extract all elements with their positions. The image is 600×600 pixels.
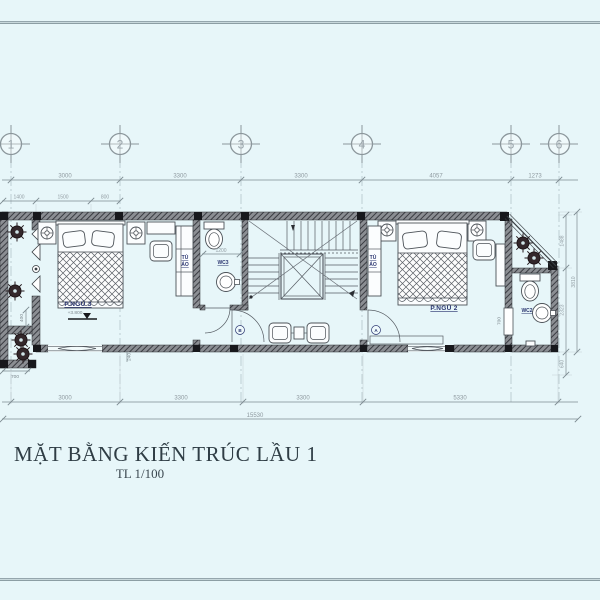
lamp-icon (41, 227, 53, 239)
dim-top-3300b: 3300 (294, 174, 308, 180)
label-wc3: WC3 (217, 260, 228, 266)
dim-top2-1400: 1400 (13, 195, 24, 201)
armchair-icon (269, 323, 291, 343)
desk (496, 244, 505, 286)
armchair-icon (307, 323, 329, 343)
grid-bubble-1: 1 (8, 138, 15, 152)
dim-top2-800: 800 (101, 195, 110, 201)
pillow (402, 231, 428, 250)
side-table (294, 327, 304, 339)
dim-top-3000: 3000 (58, 174, 72, 180)
floor-plan-svg: 1 2 3 4 5 6 3000 3300 3300 4057 1273 140… (0, 0, 600, 600)
label-wardrobe2-line1: TỦ (370, 254, 377, 261)
drawing-sheet: 1 2 3 4 5 6 3000 3300 3300 4057 1273 140… (0, 0, 600, 600)
wardrobe-bedroom3 (176, 226, 193, 296)
dim-bot-3300a: 3300 (174, 396, 188, 402)
grid-bubble-3: 3 (238, 138, 245, 152)
wardrobe-bedroom2 (368, 226, 381, 296)
label-wardrobe3-line2: ÁO (181, 261, 189, 268)
drawing-title: MẶT BẰNG KIẾN TRÚC LẦU 1 (14, 442, 317, 466)
lamp-icon (381, 224, 393, 236)
desk (147, 222, 175, 234)
plant-icon (514, 234, 533, 253)
plant-icon (6, 282, 25, 301)
chair-icon (150, 241, 172, 261)
dim-wc2-door-700: 700 (497, 317, 503, 325)
chair-icon (473, 240, 495, 260)
dim-right-1488: 1488 (560, 235, 566, 246)
drawing-scale: TL 1/100 (116, 466, 164, 481)
dim-bot-3300b: 3300 (296, 396, 310, 402)
toilet-icon (520, 274, 540, 301)
label-wardrobe2-line2: ÁO (369, 261, 377, 268)
label-bedroom2: P.NGỦ 2 (430, 303, 457, 312)
dim-left-700: 700 (11, 374, 19, 380)
label-wc2: WC2 (521, 308, 532, 314)
label-bedroom3: P.NGỦ 3 (64, 299, 91, 308)
faucet (526, 341, 535, 346)
lamp-icon (130, 227, 142, 239)
dim-bot-5330: 5330 (453, 396, 467, 402)
plant-icon (12, 331, 31, 350)
grid-bubble-6: 6 (556, 138, 563, 152)
grid-bubble-5: 5 (508, 138, 515, 152)
window-bedroom3 (48, 345, 102, 352)
dim-right-2323: 2323 (560, 304, 566, 315)
grid-bubble-2: 2 (117, 138, 124, 152)
dim-top2-1500: 1500 (57, 195, 68, 201)
dim-top-1273: 1273 (528, 174, 542, 180)
toilet-icon (204, 222, 224, 249)
grid-bubble-4: 4 (359, 138, 366, 152)
plant-icon (8, 223, 27, 242)
dim-wc3-1200: 1200 (215, 248, 226, 254)
dim-right-640: 640 (560, 360, 566, 369)
dim-bot-3000: 3000 (58, 396, 72, 402)
dim-bay-240: 240 (127, 353, 133, 361)
dim-right-3810: 3810 (571, 276, 577, 287)
wc2-door-leaf (504, 308, 513, 335)
pillow (436, 231, 462, 250)
dim-left-400: 400 (19, 314, 25, 322)
lamp-icon (471, 224, 483, 236)
plant-icon (525, 249, 544, 268)
bed-blanket (58, 252, 123, 302)
plant-icon (14, 345, 33, 364)
label-bedroom3-level: +3.800 (68, 310, 83, 316)
dim-top-4057: 4057 (429, 174, 443, 180)
label-wardrobe3-line1: TỦ (182, 254, 189, 261)
pillow (91, 230, 115, 248)
bed-blanket (398, 253, 467, 298)
pillow (62, 230, 86, 248)
dim-top-3300a: 3300 (173, 174, 187, 180)
dim-total-15530: 15530 (247, 413, 264, 419)
